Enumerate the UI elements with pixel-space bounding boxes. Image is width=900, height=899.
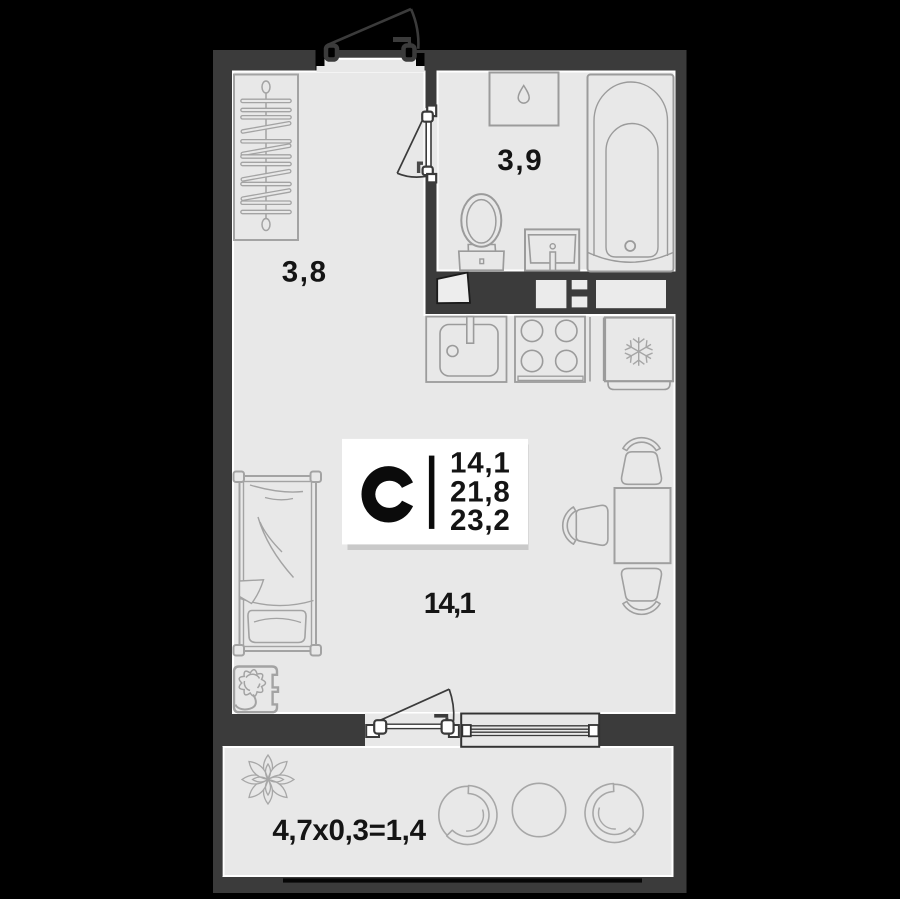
svg-text:3,8: 3,8 <box>282 256 328 289</box>
svg-text:3,9: 3,9 <box>497 144 543 177</box>
svg-text:14,1: 14,1 <box>450 446 511 479</box>
svg-text:4,7x0,3=1,4: 4,7x0,3=1,4 <box>272 814 426 847</box>
svg-text:14,1: 14,1 <box>424 587 476 620</box>
svg-text:23,2: 23,2 <box>450 504 511 537</box>
